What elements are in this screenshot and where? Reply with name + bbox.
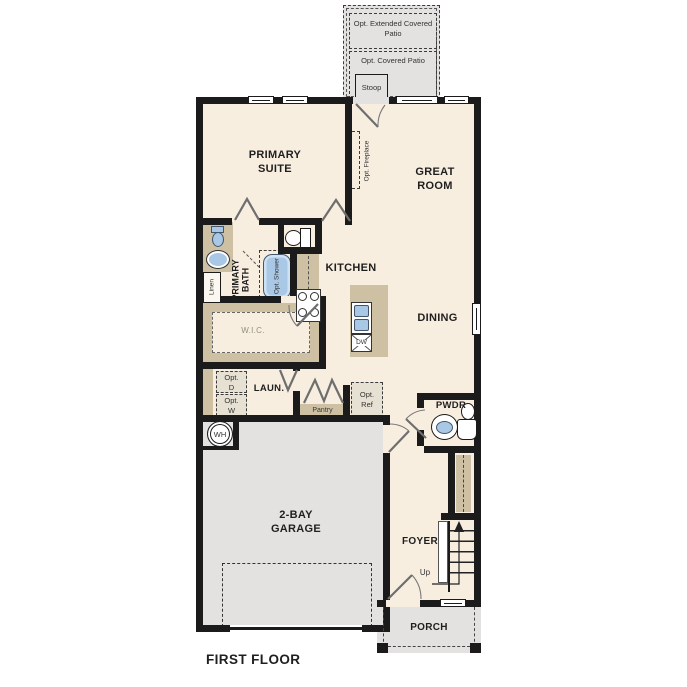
- room-label-laundry: LAUN.: [247, 383, 291, 395]
- room-label-great-room: GREAT ROOM: [400, 165, 470, 194]
- suite-door-marker: [322, 200, 350, 221]
- floor-plan: Opt. Extended Covered Patio Opt. Covered…: [0, 0, 687, 687]
- room-label-dining: DINING: [405, 311, 470, 325]
- room-label-garage: 2-BAY GARAGE: [258, 508, 334, 537]
- garage-door-arc: [390, 424, 409, 431]
- wic-door-arc: [289, 305, 297, 326]
- pwdr-door-arc: [406, 410, 425, 419]
- wic-door-leaf: [297, 304, 318, 326]
- garage-door-leaf: [389, 431, 409, 452]
- stairs-up-label: Up: [417, 568, 433, 578]
- stair-direction-arrow: [432, 521, 464, 584]
- opt-shower-label: Opt. Shower: [273, 257, 280, 295]
- room-label-wic: W.I.C.: [233, 326, 273, 336]
- pwdr-door-leaf: [406, 419, 426, 438]
- opt-fireplace-label: Opt. Fireplace: [363, 141, 370, 182]
- plan-title: FIRST FLOOR: [206, 651, 346, 669]
- room-label-primary-bath: PRIMARY BATH: [231, 254, 252, 306]
- front-door-arc: [412, 575, 421, 599]
- bath-door-marker: [235, 199, 259, 220]
- stoop-door-arc: [378, 105, 385, 127]
- room-label-pantry: Pantry: [300, 406, 345, 415]
- room-label-pwdr: PWDR: [430, 400, 472, 412]
- front-door-leaf: [388, 575, 412, 599]
- room-label-primary-suite: PRIMARY SUITE: [235, 148, 315, 177]
- stoop-door-leaf: [356, 104, 378, 127]
- linen-label: Linen: [208, 279, 215, 295]
- room-label-porch: PORCH: [377, 621, 481, 634]
- room-label-foyer: FOYER: [392, 535, 448, 548]
- door-swing-overlay: [0, 0, 687, 687]
- room-label-kitchen: KITCHEN: [322, 261, 380, 275]
- pantry-bifold-doors: [304, 380, 343, 403]
